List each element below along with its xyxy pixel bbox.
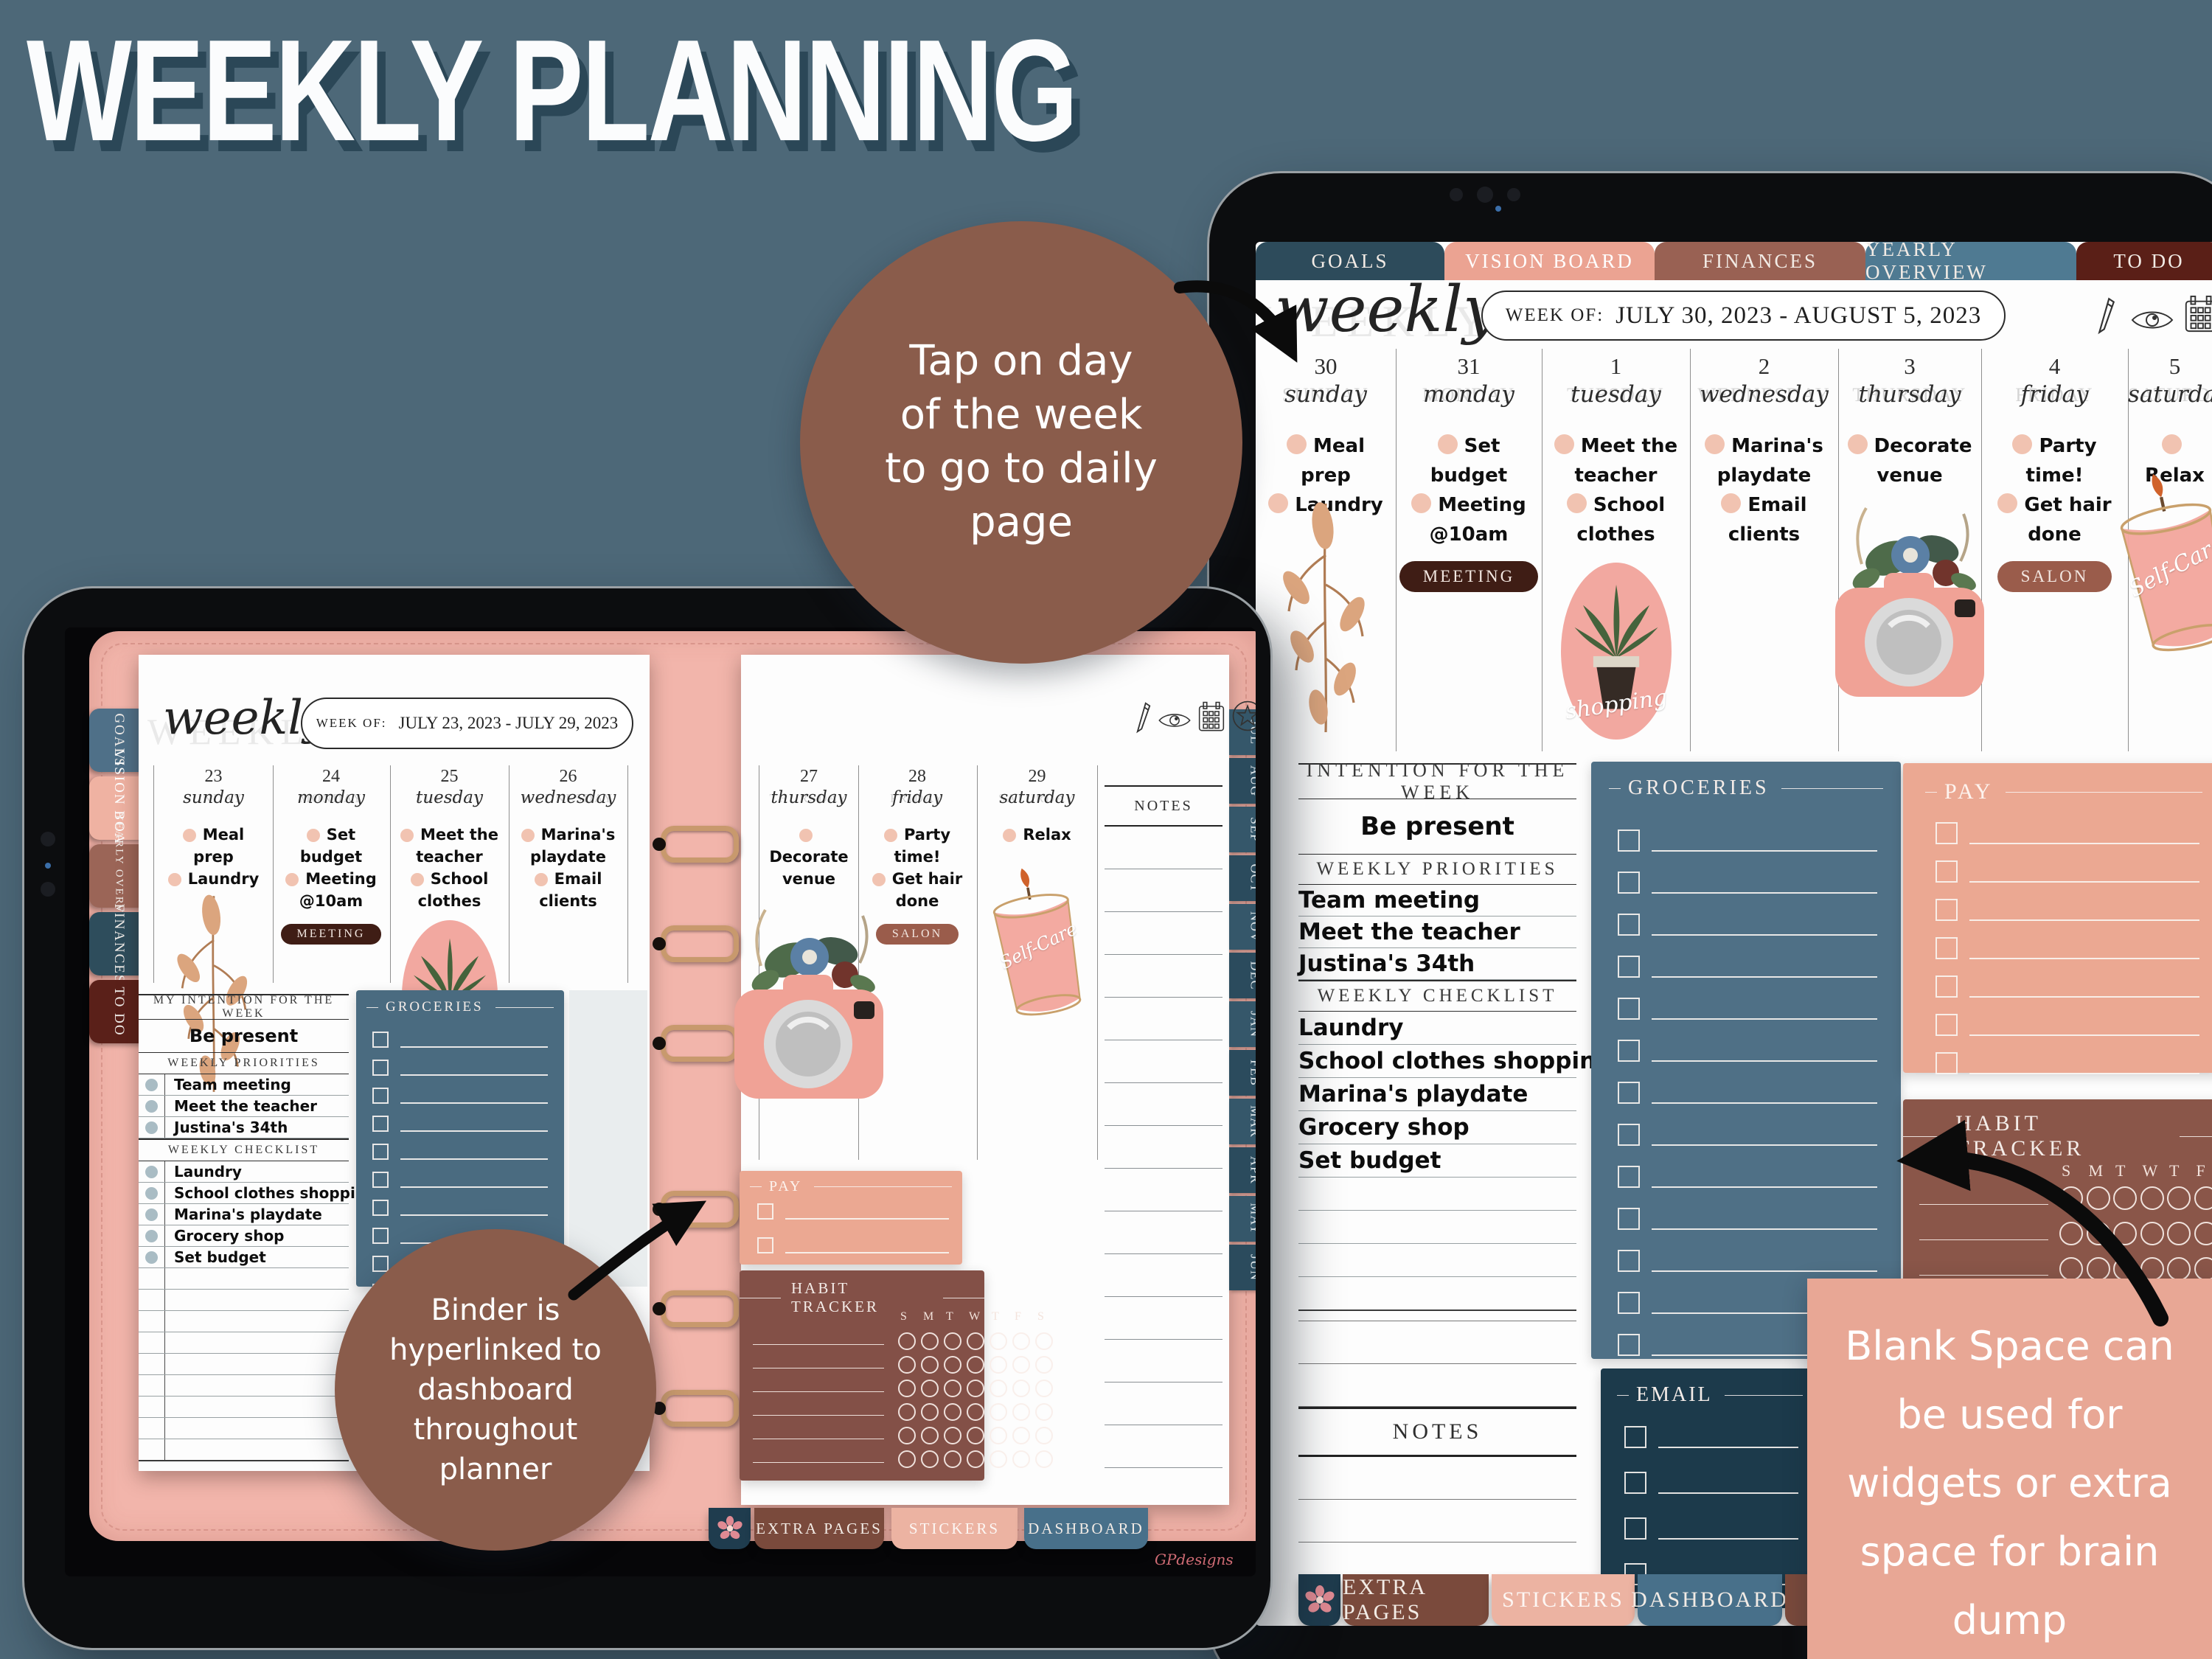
habit-circle[interactable]	[921, 1427, 939, 1444]
day-name: THURSDAYthursday	[1838, 381, 1981, 417]
list-blank	[164, 1397, 349, 1417]
write-line	[1652, 1018, 1877, 1020]
watermark: GPdesigns	[1155, 1551, 1234, 1568]
task-dot	[1554, 434, 1574, 454]
sticker-plant: shopping	[1561, 563, 1672, 740]
write-line	[400, 1102, 548, 1104]
habit-circle[interactable]	[1035, 1403, 1053, 1421]
habit-circle[interactable]	[967, 1332, 984, 1350]
write-line	[785, 1252, 949, 1253]
habit-circle[interactable]	[2087, 1186, 2110, 1210]
day-name-script: saturday	[2128, 381, 2212, 408]
day-number: 1	[1542, 353, 1690, 380]
task-text: Marina's playdate	[530, 826, 615, 866]
day-column-sunday[interactable]: 30SUNDAYsundayMeal prepLaundry	[1256, 349, 1397, 751]
task-dot	[521, 829, 535, 842]
checkbox[interactable]	[372, 1172, 389, 1188]
task-item: Meet the teacher	[1542, 431, 1690, 490]
list-text: Laundry	[164, 1161, 349, 1182]
pay-panel: PAY	[1903, 763, 2212, 1073]
checkbox[interactable]	[1624, 1472, 1646, 1494]
day-tasks: Marina's playdateEmail clients	[509, 824, 627, 912]
checkbox[interactable]	[1935, 899, 1958, 921]
tab-extra-pages[interactable]: EXTRA PAGES	[754, 1508, 884, 1549]
day-number: 3	[1838, 353, 1981, 380]
task-dot	[1411, 493, 1431, 513]
habit-circle[interactable]	[944, 1403, 961, 1421]
checkbox-row	[372, 1200, 548, 1216]
habit-circle[interactable]	[2140, 1222, 2164, 1245]
day-column-thursday[interactable]: 3THURSDAYthursdayDecorate venue	[1838, 349, 1982, 751]
write-line	[785, 1218, 949, 1220]
checkbox-row	[1618, 872, 1877, 894]
habit-circle[interactable]	[944, 1332, 961, 1350]
task-dot	[535, 873, 548, 886]
day-tasks: Decorate venue	[1838, 431, 1981, 490]
day-column-saturday[interactable]: 29SATURDAYsaturdayRelaxSelf-Care	[977, 765, 1098, 1160]
checkbox[interactable]	[1618, 1250, 1640, 1272]
label-badge: SALON	[1997, 561, 2112, 592]
habit-day-letter: F	[2197, 1161, 2205, 1180]
write-line	[1969, 958, 2199, 959]
task-dot	[2162, 434, 2182, 454]
habit-circle[interactable]	[2167, 1186, 2191, 1210]
habit-circle[interactable]	[967, 1403, 984, 1421]
list-row: School clothes shopping	[1298, 1045, 1576, 1078]
list-text: Grocery shop	[1298, 1114, 1576, 1141]
habit-day-letter: S	[2062, 1161, 2070, 1180]
day-number: 5	[2128, 353, 2212, 380]
list-blank	[164, 1311, 349, 1332]
label-badge: SALON	[876, 924, 959, 945]
tab-dashboard[interactable]: DASHBOARD	[1638, 1574, 1782, 1626]
habit-circle[interactable]	[1035, 1332, 1053, 1350]
annotation-line: dashboard	[417, 1370, 574, 1410]
checkbox[interactable]	[1935, 975, 1958, 998]
checkbox[interactable]	[372, 1200, 389, 1216]
groceries-panel: GROCERIES	[1591, 762, 1901, 1359]
day-column-tuesday[interactable]: 1TUESDAYtuesdayMeet the teacherSchool cl…	[1542, 349, 1691, 751]
checkbox[interactable]	[372, 1144, 389, 1160]
checkbox[interactable]	[372, 1116, 389, 1132]
habit-circle[interactable]	[1012, 1427, 1030, 1444]
habit-circle[interactable]	[967, 1427, 984, 1444]
tablet-sensor-icon	[1495, 206, 1501, 212]
write-line	[1652, 1228, 1877, 1230]
tab-dashboard-flower[interactable]	[709, 1508, 751, 1549]
tab-stickers[interactable]: STICKERS	[1492, 1574, 1635, 1626]
habit-circle[interactable]	[1012, 1332, 1030, 1350]
write-line	[1658, 1492, 1798, 1494]
day-tasks: Party time!Get hair doneSALON	[858, 824, 977, 945]
day-column-wednesday[interactable]: 2WEDNESDAYwednesdayMarina's playdateEmai…	[1690, 349, 1839, 751]
annotation-blank-space-box: Blank Space can be used for widgets or e…	[1807, 1279, 2212, 1659]
list-row: Meet the teacher	[139, 1096, 349, 1117]
checkbox[interactable]	[1624, 1426, 1646, 1448]
tab-yearly-overview[interactable]: YEARLY OVERVIEW	[1865, 242, 2076, 280]
habit-circle[interactable]	[1035, 1380, 1053, 1397]
checkbox[interactable]	[1618, 914, 1640, 936]
habit-name-line	[1919, 1239, 2048, 1240]
habit-circle[interactable]	[2140, 1186, 2164, 1210]
write-line	[1652, 1186, 1877, 1188]
task-item: Decorate venue	[1838, 431, 1981, 490]
day-column-monday[interactable]: 31MONDAYmondaySet budgetMeeting @10amMEE…	[1396, 349, 1543, 751]
day-tasks: Set budgetMeeting @10amMEETING	[1396, 431, 1542, 592]
list-row-blank	[139, 1332, 349, 1354]
tablet-sensor-icon	[45, 863, 51, 869]
habit-circle[interactable]	[2059, 1186, 2083, 1210]
checkbox-row	[1618, 998, 1877, 1020]
ruled-line	[1298, 1298, 1576, 1321]
bullet-dot	[145, 1251, 158, 1264]
checkbox-row	[372, 1032, 548, 1048]
habit-circle[interactable]	[990, 1403, 1007, 1421]
habit-circle[interactable]	[2167, 1222, 2191, 1245]
checkbox-row	[1935, 822, 2199, 844]
day-name: TUESDAYtuesday	[1542, 381, 1690, 417]
habit-circle[interactable]	[2194, 1222, 2212, 1245]
day-number: 4	[1981, 353, 2128, 380]
task-item: Meal prep	[1256, 431, 1396, 490]
day-tasks: Decorate venue	[759, 824, 858, 890]
day-name-script: wednesday	[521, 788, 616, 807]
habit-circle[interactable]	[898, 1332, 916, 1350]
habit-circle[interactable]	[1012, 1403, 1030, 1421]
write-line	[1652, 892, 1877, 894]
annotation-line: dump	[1952, 1587, 2067, 1655]
habit-circle[interactable]	[1035, 1427, 1053, 1444]
checkbox[interactable]	[1618, 956, 1640, 978]
day-name-script: tuesday	[1571, 381, 1661, 408]
list-text: Team meeting	[164, 1074, 349, 1095]
bullet-dot	[145, 1121, 158, 1134]
checkbox[interactable]	[1935, 822, 1958, 844]
habit-circle[interactable]	[990, 1356, 1007, 1374]
ruled-line	[1105, 1382, 1222, 1425]
bullet-dot	[145, 1230, 158, 1242]
habit-circle[interactable]	[990, 1332, 1007, 1350]
tab-extra-pages[interactable]: EXTRA PAGES	[1343, 1574, 1489, 1626]
list-row: Justina's 34th	[139, 1117, 349, 1138]
list-blank	[164, 1418, 349, 1439]
write-line	[1652, 1102, 1877, 1104]
habit-circle[interactable]	[921, 1380, 939, 1397]
task-item: Relax	[977, 824, 1097, 846]
write-line	[1652, 1144, 1877, 1146]
checkbox[interactable]	[372, 1032, 389, 1048]
checkbox-row	[372, 1172, 548, 1188]
priorities-header: WEEKLY PRIORITIES	[1298, 854, 1576, 885]
habit-name-line	[753, 1391, 884, 1392]
annotation-line: hyperlinked to	[389, 1330, 602, 1370]
habit-circle[interactable]	[2113, 1222, 2137, 1245]
list-blank	[164, 1290, 349, 1310]
pay-title: PAY	[1925, 779, 2202, 804]
habit-circle[interactable]	[967, 1380, 984, 1397]
list-row-blank	[139, 1375, 349, 1397]
habit-circle[interactable]	[898, 1356, 916, 1374]
habit-circle[interactable]	[1012, 1380, 1030, 1397]
day-number: 30	[1256, 353, 1396, 380]
week-of-field[interactable]: WEEK OF: JULY 30, 2023 - AUGUST 5, 2023	[1481, 291, 2006, 341]
write-line	[1969, 996, 2199, 998]
habit-day-letter: M	[2089, 1161, 2104, 1180]
checkbox[interactable]	[1935, 860, 1958, 883]
habit-circle[interactable]	[2087, 1222, 2110, 1245]
habit-circle[interactable]	[990, 1427, 1007, 1444]
day-column-saturday[interactable]: 5SATURDAYsaturdayRelaxSelf-Care	[2128, 349, 2212, 751]
habit-circle[interactable]	[2113, 1186, 2137, 1210]
task-item: Email clients	[1690, 490, 1838, 549]
habit-circle[interactable]	[944, 1356, 961, 1374]
habit-day-letter: S	[1037, 1310, 1044, 1324]
ruled-line	[1105, 912, 1222, 955]
list-row: Laundry	[139, 1161, 349, 1183]
day-name: MONDAYmonday	[1396, 381, 1542, 417]
task-text: Email clients	[539, 870, 602, 910]
day-column-friday[interactable]: 28FRIDAYfridayParty time!Get hair doneSA…	[858, 765, 978, 1160]
checkbox-row	[1624, 1426, 1798, 1448]
email-panel: EMAIL	[1601, 1368, 1818, 1608]
list-text: Set budget	[164, 1247, 349, 1267]
checkbox[interactable]	[1618, 1040, 1640, 1062]
habit-circle[interactable]	[1012, 1356, 1030, 1374]
habit-circle[interactable]	[2059, 1257, 2083, 1281]
habit-circle[interactable]	[898, 1427, 916, 1444]
ruled-line	[1105, 1425, 1222, 1468]
list-row-blank	[1298, 1244, 1576, 1277]
tablet-camera-icon	[41, 832, 55, 846]
bullet-dot	[145, 1187, 158, 1200]
day-name-script: thursday	[771, 788, 846, 807]
habit-circle[interactable]	[1012, 1450, 1030, 1468]
notes-section: NOTES	[1105, 785, 1222, 1468]
write-line	[1969, 919, 2199, 921]
checkbox[interactable]	[1618, 1208, 1640, 1230]
checkbox-row	[372, 1060, 548, 1076]
annotation-line: planner	[439, 1450, 552, 1489]
pay-panel: PAY	[740, 1171, 962, 1265]
pay-rows	[757, 1203, 949, 1271]
tablet-camera-icon	[1507, 188, 1520, 201]
list-row-blank	[1298, 1178, 1576, 1211]
habit-circle[interactable]	[2167, 1257, 2191, 1281]
task-item: Decorate venue	[759, 824, 858, 890]
list-row: School clothes shopping	[139, 1183, 349, 1204]
habit-day-letter: W	[2143, 1161, 2158, 1180]
checkbox[interactable]	[1618, 1334, 1640, 1356]
list-row: Team meeting	[1298, 885, 1576, 917]
habit-circle[interactable]	[2194, 1186, 2212, 1210]
habit-circle[interactable]	[898, 1403, 916, 1421]
ruled-line	[1105, 1083, 1222, 1126]
annotation-line: Tap on day	[909, 335, 1133, 389]
tab-dashboard-flower[interactable]	[1298, 1574, 1340, 1626]
habit-circle[interactable]	[944, 1450, 961, 1468]
task-item: Party time!	[858, 824, 977, 868]
checkbox-row	[1935, 975, 2199, 998]
day-name-script: thursday	[1859, 381, 1961, 408]
habit-circle[interactable]	[2140, 1257, 2164, 1281]
checkbox[interactable]	[1935, 1014, 1958, 1036]
task-text: Decorate venue	[1874, 435, 1972, 487]
task-text: School clothes	[1576, 494, 1665, 546]
list-blank	[164, 1354, 349, 1374]
habit-circle[interactable]	[2059, 1222, 2083, 1245]
write-line	[1652, 1270, 1877, 1272]
checkbox[interactable]	[1624, 1517, 1646, 1540]
write-line	[400, 1158, 548, 1160]
day-column-tuesday[interactable]: 25TUESDAYtuesdayMeet the teacherSchool c…	[390, 765, 509, 983]
page-title: WEEKLY PLANNING	[27, 7, 1077, 174]
eye-icon[interactable]	[2130, 307, 2174, 333]
blank-space	[569, 990, 647, 1287]
ruled-line	[1105, 1297, 1222, 1340]
day-column-sunday[interactable]: 23SUNDAYsundayMeal prepLaundry	[153, 765, 274, 983]
habit-circle[interactable]	[944, 1380, 961, 1397]
day-name-script: monday	[1423, 381, 1514, 408]
habit-circle[interactable]	[921, 1450, 939, 1468]
habit-day-letter: T	[946, 1310, 953, 1324]
task-text: Marina's playdate	[1717, 435, 1823, 487]
checkbox[interactable]	[372, 1256, 389, 1272]
habit-name-line	[753, 1344, 884, 1345]
task-dot	[1438, 434, 1458, 454]
list-blank	[164, 1375, 349, 1396]
list-text: School clothes shopping	[1298, 1048, 1612, 1074]
list-row: Grocery shop	[139, 1225, 349, 1247]
list-row-blank	[139, 1311, 349, 1332]
annotation-line: space for brain	[1860, 1518, 2160, 1587]
day-name: THURSDAYthursday	[759, 788, 858, 815]
tab-to-do[interactable]: TO DO	[2076, 242, 2212, 280]
day-column-wednesday[interactable]: 26WEDNESDAYwednesdayMarina's playdateEma…	[509, 765, 628, 983]
checkbox-row	[1618, 1082, 1877, 1104]
task-dot	[1705, 434, 1725, 454]
checkbox[interactable]	[1618, 1292, 1640, 1314]
groceries-title: GROCERIES	[1609, 776, 1883, 800]
habit-circle[interactable]	[944, 1427, 961, 1444]
checkbox-row	[1618, 1040, 1877, 1062]
week-day-columns: 30SUNDAYsundayMeal prepLaundry31MONDAYmo…	[1256, 349, 2212, 751]
checkbox[interactable]	[1618, 1082, 1640, 1104]
day-column-thursday[interactable]: 27THURSDAYthursdayDecorate venue	[759, 765, 859, 1160]
task-dot	[2012, 434, 2032, 454]
left-tablet-screen: GOALS VISION BOARD YEARLY OVERVIEW FINAN…	[65, 627, 1256, 1576]
list-row-blank	[139, 1418, 349, 1439]
ruled-line	[1298, 1321, 1576, 1364]
list-text: Meet the teacher	[1298, 919, 1576, 945]
task-text: Meal prep	[193, 826, 244, 866]
checkbox[interactable]	[1618, 1124, 1640, 1146]
habit-circle[interactable]	[1035, 1450, 1053, 1468]
task-item: Get hair done	[858, 868, 977, 912]
checkbox-row	[757, 1237, 949, 1253]
tab-dashboard[interactable]: DASHBOARD	[1024, 1508, 1148, 1549]
list-text: Justina's 34th	[1298, 950, 1576, 977]
day-number: 29	[977, 767, 1097, 787]
checkbox[interactable]	[372, 1228, 389, 1244]
habit-circle[interactable]	[967, 1356, 984, 1374]
checkbox[interactable]	[1935, 1052, 1958, 1074]
habit-circle[interactable]	[2087, 1257, 2110, 1281]
habit-circle[interactable]	[2194, 1257, 2212, 1281]
checkbox-row	[1935, 1052, 2199, 1074]
checkbox[interactable]	[372, 1060, 389, 1076]
write-line	[1658, 1538, 1798, 1540]
tab-finances[interactable]: FINANCES	[1655, 242, 1865, 280]
write-line	[1652, 1060, 1877, 1062]
task-text: Party time!	[2026, 435, 2097, 487]
checkbox[interactable]	[757, 1203, 773, 1220]
list-row-blank	[139, 1268, 349, 1290]
list-row: Marina's playdate	[139, 1204, 349, 1225]
annotation-line: page	[970, 496, 1073, 550]
checkbox[interactable]	[1618, 998, 1640, 1020]
sticker-candle: Self-Care	[969, 846, 1105, 1039]
habit-circle[interactable]	[898, 1380, 916, 1397]
habit-circle[interactable]	[967, 1450, 984, 1468]
checkbox[interactable]	[1618, 872, 1640, 894]
day-number: 24	[272, 767, 390, 787]
habit-circle[interactable]	[990, 1450, 1007, 1468]
day-number: 26	[509, 767, 627, 787]
habit-circle[interactable]	[921, 1356, 939, 1374]
list-row: Laundry	[1298, 1012, 1576, 1045]
calendar-icon[interactable]	[2183, 295, 2212, 333]
checkbox-row	[1935, 899, 2199, 921]
habit-circle[interactable]	[898, 1450, 916, 1468]
checkbox-row	[1618, 956, 1877, 978]
task-text: Meeting @10am	[299, 870, 377, 910]
checkbox[interactable]	[1935, 937, 1958, 959]
habit-name-line	[753, 1415, 884, 1416]
checkbox[interactable]	[372, 1088, 389, 1104]
checkbox[interactable]	[757, 1237, 773, 1253]
write-line	[400, 1074, 548, 1076]
checkbox-row	[1935, 1014, 2199, 1036]
tab-stickers[interactable]: STICKERS	[891, 1508, 1018, 1549]
ruled-line	[1298, 1457, 1576, 1500]
habit-circle[interactable]	[921, 1403, 939, 1421]
checkbox[interactable]	[1618, 1166, 1640, 1188]
intention-value: Be present	[139, 1020, 349, 1052]
checkbox-row	[1624, 1517, 1798, 1540]
list-text: School clothes shopping	[164, 1183, 376, 1203]
task-item: Meeting @10am	[272, 868, 390, 912]
task-dot	[1721, 493, 1741, 513]
habit-circle[interactable]	[990, 1380, 1007, 1397]
task-item: Set budget	[272, 824, 390, 868]
habit-circle[interactable]	[1035, 1356, 1053, 1374]
pencil-icon[interactable]	[2096, 296, 2117, 335]
task-dot	[285, 873, 299, 886]
groceries-title: GROCERIES	[366, 999, 554, 1015]
list-row: Team meeting	[139, 1074, 349, 1096]
task-dot	[1848, 434, 1868, 454]
task-text: School clothes	[418, 870, 489, 910]
day-column-monday[interactable]: 24MONDAYmondaySet budgetMeeting @10amMEE…	[272, 765, 391, 983]
habit-circle[interactable]	[2113, 1257, 2137, 1281]
annotation-line: widgets or extra	[1847, 1450, 2172, 1518]
sticker-leaf	[1274, 496, 1377, 740]
checkbox-row	[1618, 1166, 1877, 1188]
checkbox[interactable]	[1618, 829, 1640, 852]
ruled-line	[1105, 1169, 1222, 1211]
checkbox-row	[1618, 914, 1877, 936]
habit-circle[interactable]	[921, 1332, 939, 1350]
